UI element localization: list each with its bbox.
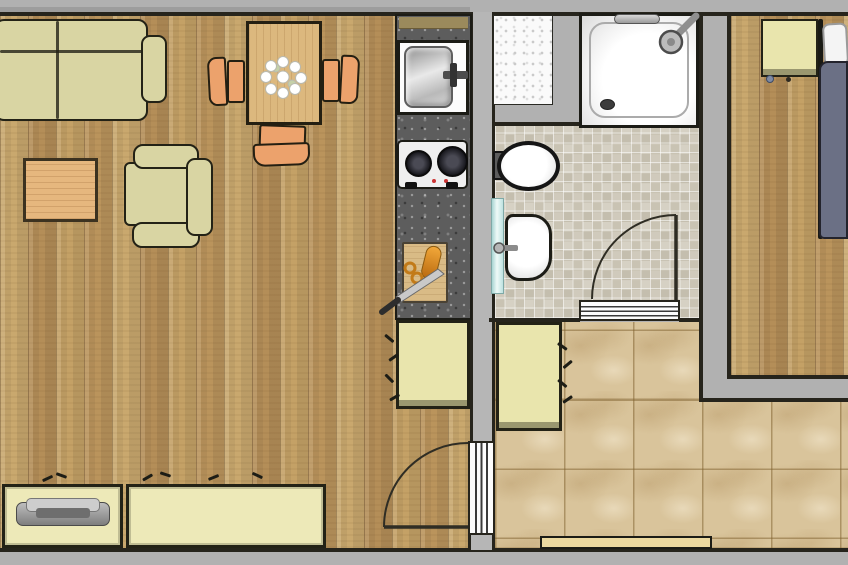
- sofa-armrest: [141, 35, 167, 103]
- cutting-board: [402, 242, 448, 303]
- doormat: [540, 536, 712, 549]
- stove-burner-left: [405, 150, 432, 177]
- sideboard-right: [126, 484, 326, 548]
- bathroom-radiator: [491, 198, 504, 294]
- armchair-seat: [124, 162, 190, 226]
- kitchen-base-cabinet: [396, 320, 470, 409]
- bathroom-sink: [505, 214, 552, 281]
- sofa: [0, 19, 148, 121]
- dining-table: [246, 21, 322, 125]
- kitchen-sink-basin: [404, 46, 453, 108]
- apartment-floor-plan: [0, 0, 848, 565]
- nightstand-shadow: [763, 69, 816, 75]
- entry-wall-stub: [468, 533, 495, 550]
- stove-indicator-light: [432, 179, 436, 183]
- bedroom-bottom-wall: [727, 375, 848, 379]
- kitchen-counter-shelf: [399, 17, 468, 29]
- bathroom-top-wall: [492, 122, 580, 126]
- stove-knob: [405, 182, 417, 189]
- dining-chair-bottom-back: [253, 142, 311, 167]
- washing-machine: [493, 15, 553, 105]
- bed-duvet: [819, 61, 848, 239]
- cabinet-shadow: [499, 422, 559, 428]
- hallway-cabinet: [496, 322, 562, 431]
- dining-chair-left-seat: [227, 60, 245, 103]
- dining-chair-left-back: [207, 57, 229, 107]
- nightstand: [761, 19, 818, 77]
- shower-drain: [600, 99, 615, 110]
- sofa-back-seam: [0, 50, 145, 53]
- dining-chair-right-back: [339, 55, 361, 105]
- tv-unit-top: [36, 508, 90, 518]
- hallway-top-right-wall: [699, 398, 848, 402]
- armchair-backrest: [186, 158, 213, 236]
- bathroom-right-wall: [699, 12, 703, 402]
- bedroom-left-wall: [727, 12, 731, 379]
- dining-chair-right-seat: [322, 59, 340, 102]
- nightstand-knob: [786, 77, 791, 82]
- shower-grab-bar: [614, 14, 660, 24]
- sofa-cushion-divider: [56, 21, 59, 119]
- bed-pillow: [822, 22, 848, 66]
- stove-knob: [446, 182, 458, 189]
- bathroom-door-threshold: [579, 300, 680, 321]
- bottom-wall: [0, 548, 848, 552]
- cabinet-shadow: [399, 400, 467, 406]
- nightstand-knob: [766, 75, 774, 83]
- living-door-threshold: [468, 441, 495, 535]
- coffee-table: [23, 158, 98, 222]
- toilet-bowl: [497, 141, 560, 191]
- stove-burner-right: [437, 146, 468, 177]
